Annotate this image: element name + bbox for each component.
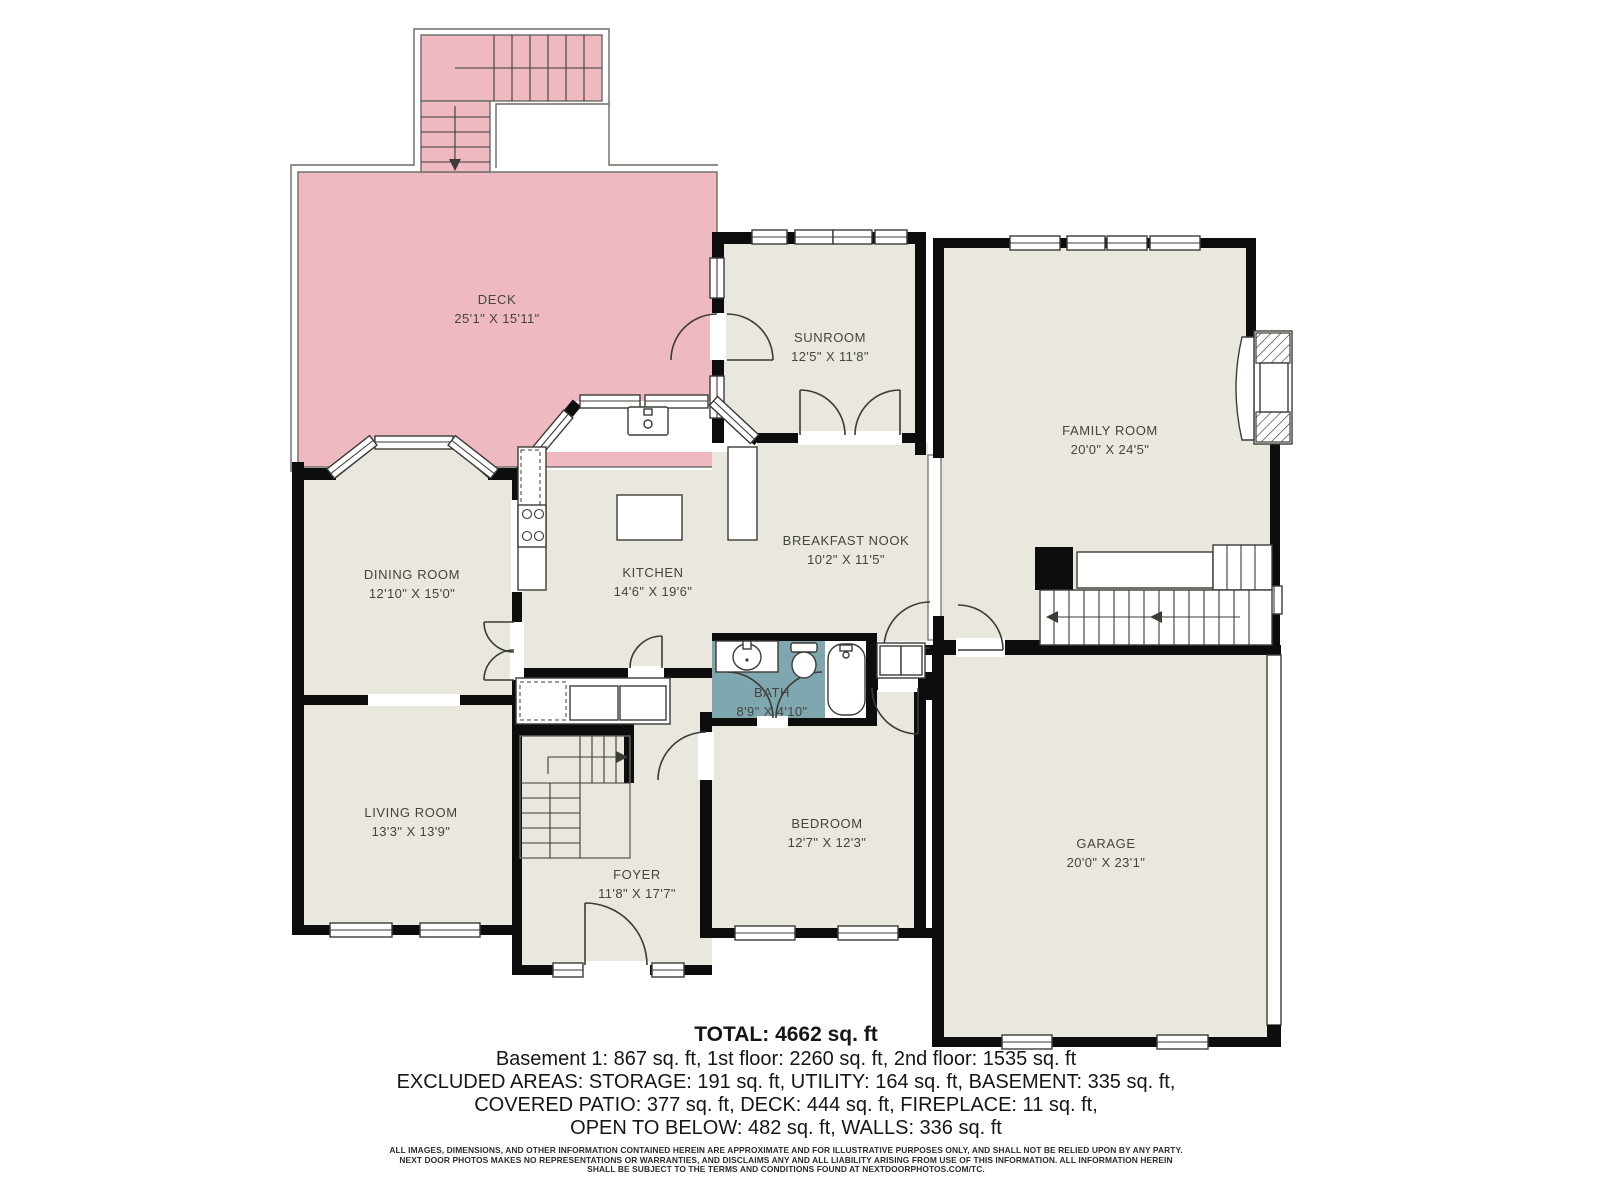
room-label-dining-room: DINING ROOM12'10" X 15'0" bbox=[292, 565, 532, 603]
room-label-living-room: LIVING ROOM13'3" X 13'9" bbox=[291, 803, 531, 841]
excluded-areas-2: COVERED PATIO: 377 sq. ft, DECK: 444 sq.… bbox=[0, 1094, 1572, 1117]
room-label-bedroom: BEDROOM12'7" X 12'3" bbox=[707, 814, 947, 852]
room-label-family-room: FAMILY ROOM20'0" X 24'5" bbox=[990, 421, 1230, 459]
basement-stairs bbox=[1035, 545, 1272, 645]
floor-plan-drawing bbox=[0, 0, 1600, 1200]
room-label-garage: GARAGE20'0" X 23'1" bbox=[986, 834, 1226, 872]
disclaimer: ALL IMAGES, DIMENSIONS, AND OTHER INFORM… bbox=[0, 1146, 1572, 1175]
hall-closets bbox=[516, 678, 670, 724]
excluded-areas-1: EXCLUDED AREAS: STORAGE: 191 sq. ft, UTI… bbox=[0, 1071, 1572, 1094]
fireplace bbox=[1236, 331, 1292, 444]
room-label-foyer: FOYER11'8" X 17'7" bbox=[517, 865, 757, 903]
total-area: TOTAL: 4662 sq. ft bbox=[0, 1022, 1572, 1048]
room-label-breakfast-nook: BREAKFAST NOOK10'2" X 11'5" bbox=[726, 531, 966, 569]
garage-right-band bbox=[1267, 655, 1281, 1047]
room-label-deck: DECK25'1" X 15'11" bbox=[377, 290, 617, 328]
floor-plan-page: DECK25'1" X 15'11" SUNROOM12'5" X 11'8" … bbox=[0, 0, 1600, 1200]
room-label-sunroom: SUNROOM12'5" X 11'8" bbox=[710, 328, 950, 366]
bedroom-closet bbox=[877, 643, 925, 678]
room-label-bath: BATH8'9" X 4'10" bbox=[652, 683, 892, 721]
floor-areas: Basement 1: 867 sq. ft, 1st floor: 2260 … bbox=[0, 1048, 1572, 1071]
disclaimer-line: SHALL BE SUBJECT TO THE TERMS AND CONDIT… bbox=[0, 1165, 1572, 1175]
area-summary: TOTAL: 4662 sq. ft Basement 1: 867 sq. f… bbox=[0, 1022, 1572, 1140]
excluded-areas-3: OPEN TO BELOW: 482 sq. ft, WALLS: 336 sq… bbox=[0, 1117, 1572, 1140]
